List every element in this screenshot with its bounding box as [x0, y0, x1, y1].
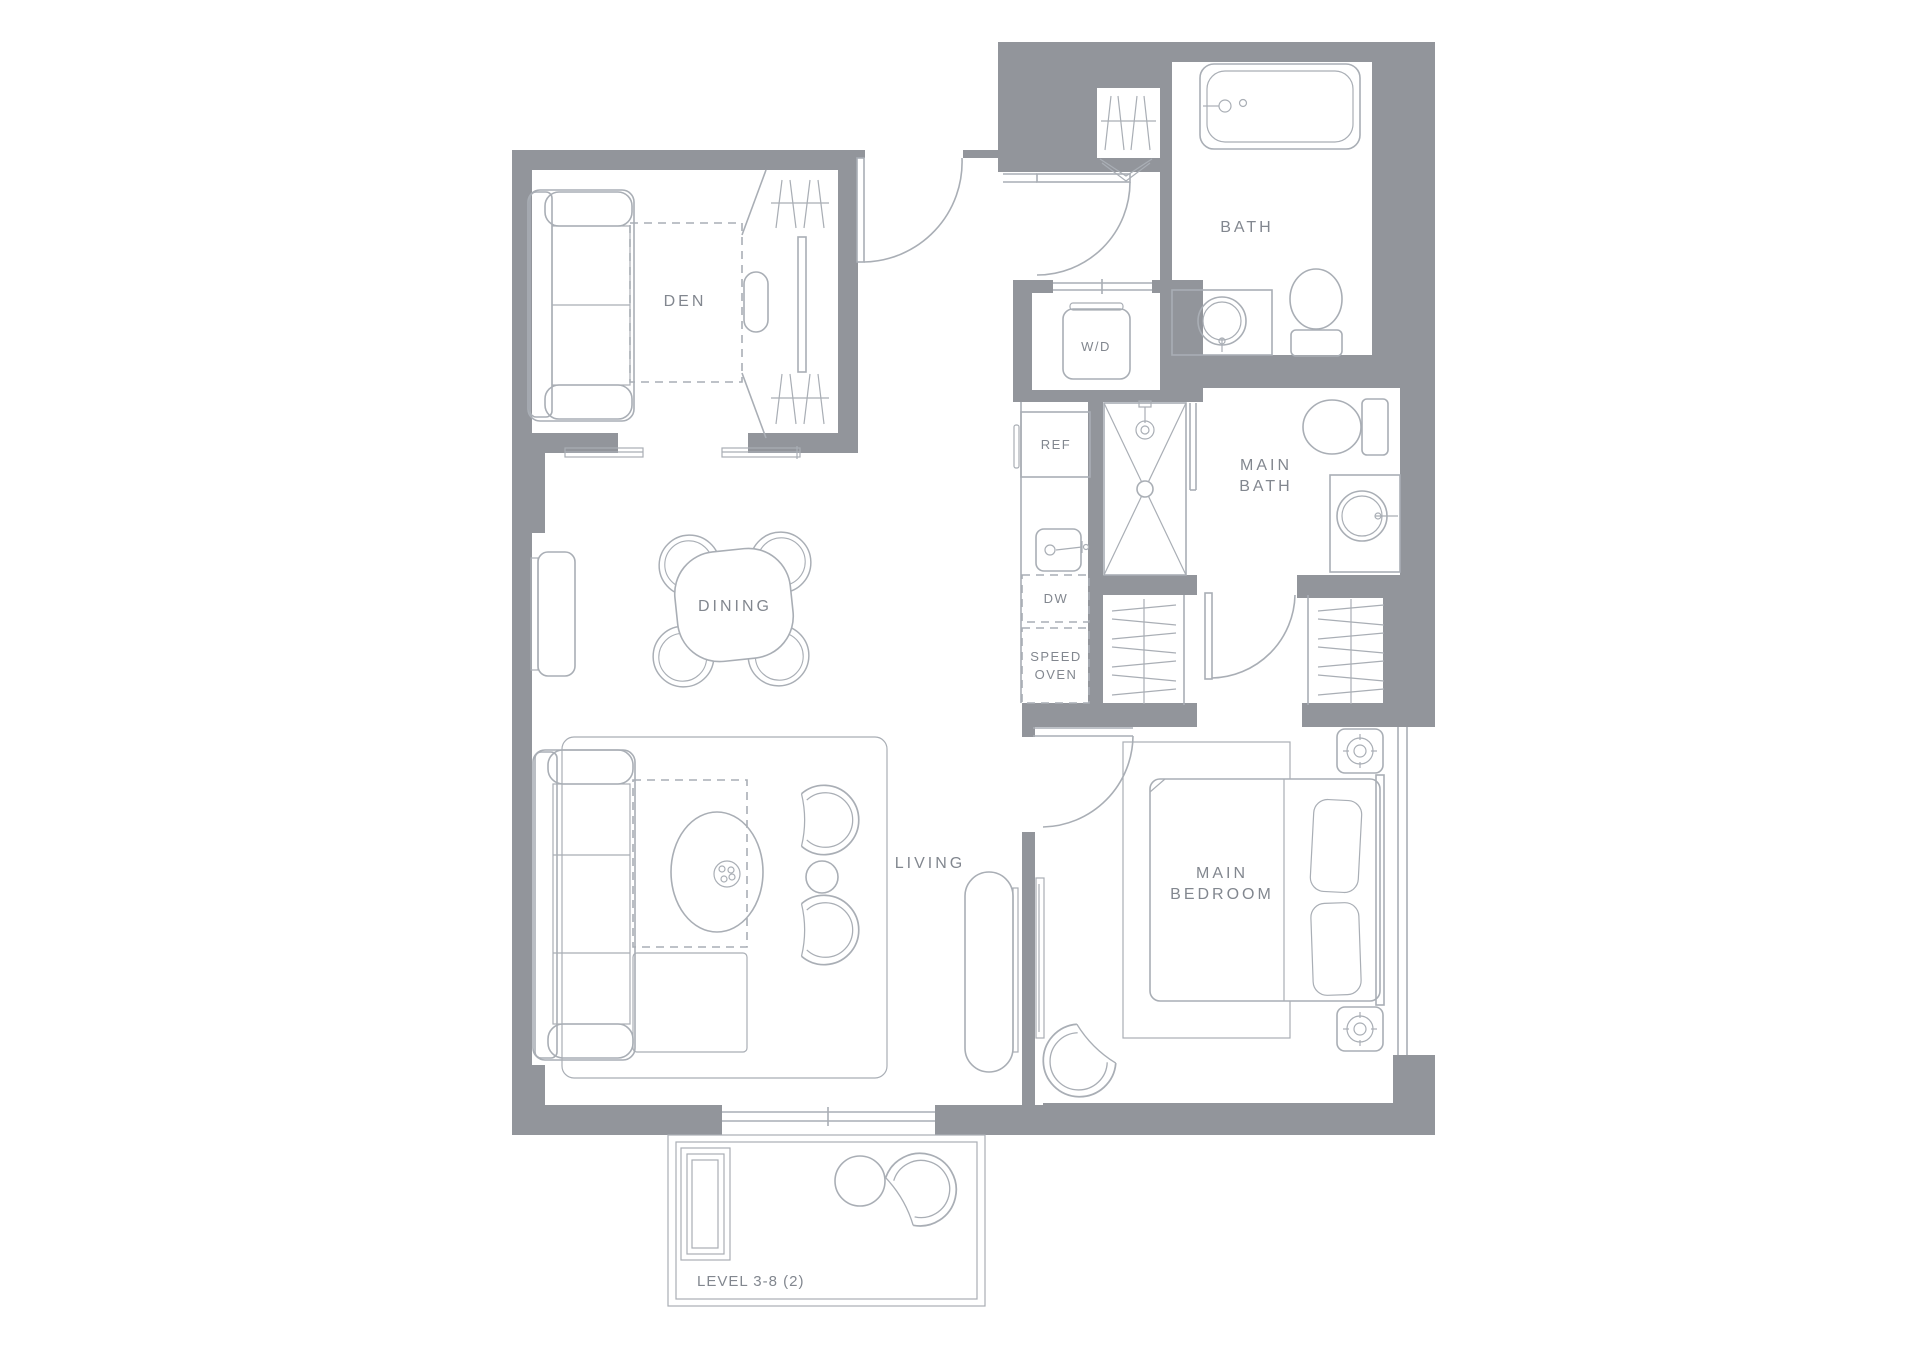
living-label: LIVING — [895, 855, 965, 872]
room-bath — [1172, 64, 1360, 356]
shower-glass — [1190, 403, 1196, 490]
bedroom-closets — [1112, 595, 1384, 705]
bath-label: BATH — [1220, 219, 1273, 236]
entry-door — [1003, 174, 1130, 275]
speed-oven-outline — [1022, 628, 1089, 703]
balcony-chair — [881, 1140, 969, 1233]
closet-left — [1112, 595, 1184, 705]
living-window — [722, 1107, 935, 1126]
bedroom-mirror — [1036, 878, 1044, 1038]
bedroom-door — [1033, 728, 1133, 827]
den-desk — [744, 237, 806, 372]
coffee-table — [671, 812, 763, 932]
media-console — [965, 872, 1018, 1072]
speed-oven-label-line1: SPEED — [1030, 649, 1082, 664]
room-main-bedroom — [1028, 729, 1384, 1112]
room-dining — [531, 520, 823, 700]
bath-toilet — [1290, 269, 1342, 356]
main-bath-toilet — [1303, 399, 1388, 455]
accent-chair-bottom — [802, 895, 859, 964]
nightstand-top — [1337, 729, 1383, 773]
closet-right — [1308, 595, 1384, 705]
den-label: DEN — [664, 293, 707, 310]
main-bath-door — [1205, 593, 1295, 679]
den-sliding-door-tracks — [565, 446, 800, 459]
main-bedroom-label-line2: BEDROOM — [1170, 886, 1274, 903]
living-dashed-outline — [633, 780, 747, 947]
main-bath-label-line2: BATH — [1239, 478, 1292, 495]
balcony-table — [835, 1156, 885, 1206]
living-chaise — [633, 953, 747, 1052]
den-closet — [742, 170, 829, 438]
shower — [1104, 401, 1196, 575]
speed-oven-label-line2: OVEN — [1035, 667, 1078, 682]
den-door — [857, 158, 962, 262]
credenza — [531, 552, 575, 676]
dining-label: DINING — [698, 598, 772, 615]
floor-plan-canvas: DEN BATH MAIN BATH DINING LIVING MAIN BE… — [0, 0, 1920, 1350]
nightstand-bottom — [1337, 1007, 1383, 1051]
level-label: LEVEL 3-8 (2) — [697, 1273, 805, 1290]
side-table — [806, 861, 838, 893]
bathtub — [1200, 64, 1360, 149]
accent-chair-top — [802, 785, 859, 854]
dishwasher-label: DW — [1044, 591, 1069, 606]
den-sofa — [528, 190, 634, 421]
main-bath-label-line1: MAIN — [1240, 457, 1292, 474]
planter — [681, 1148, 730, 1260]
kitchen-sink — [1036, 529, 1089, 571]
washer-dryer-label: W/D — [1081, 339, 1111, 354]
room-main-bath — [1303, 399, 1400, 572]
main-bedroom-label-line1: MAIN — [1196, 865, 1248, 882]
bedroom-window — [1398, 727, 1407, 1055]
living-sofa — [533, 750, 635, 1060]
bedroom-chair — [1028, 1018, 1122, 1112]
fridge-label: REF — [1041, 437, 1072, 452]
room-living — [533, 737, 1018, 1078]
main-bath-vanity — [1330, 475, 1400, 572]
